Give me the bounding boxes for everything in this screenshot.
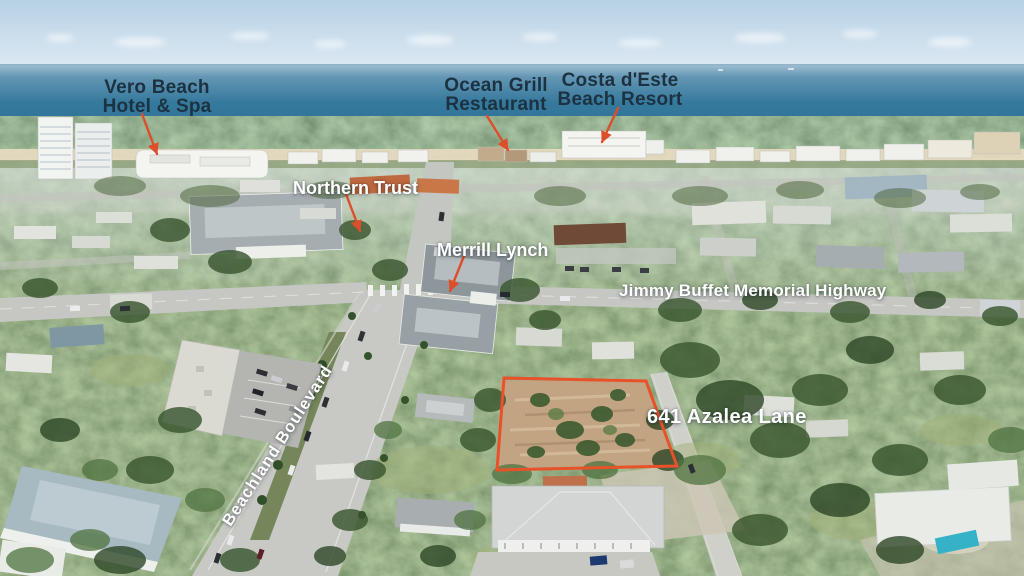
label-jimmy-buffet-memorial-highway: Jimmy Buffet Memorial Highway <box>619 281 886 301</box>
label-ocean-grill-restaurant: Ocean Grill Restaurant <box>444 76 548 114</box>
label-merrill-lynch: Merrill Lynch <box>437 240 548 261</box>
bottom-center-building <box>470 476 664 576</box>
label-northern-trust: Northern Trust <box>293 178 418 199</box>
blue-car <box>590 555 608 565</box>
label-costa-deste-beach-resort: Costa d'Este Beach Resort <box>558 71 683 109</box>
label-641-azalea-lane: 641 Azalea Lane <box>647 406 807 429</box>
condo-towers <box>38 117 112 179</box>
horizon-line <box>0 64 1024 66</box>
sky <box>0 0 1024 66</box>
aerial-listing-photo: Vero Beach Hotel & Spa Ocean Grill Resta… <box>0 0 1024 576</box>
label-vero-beach-hotel-spa: Vero Beach Hotel & Spa <box>103 78 212 116</box>
hotel-building <box>136 150 268 178</box>
